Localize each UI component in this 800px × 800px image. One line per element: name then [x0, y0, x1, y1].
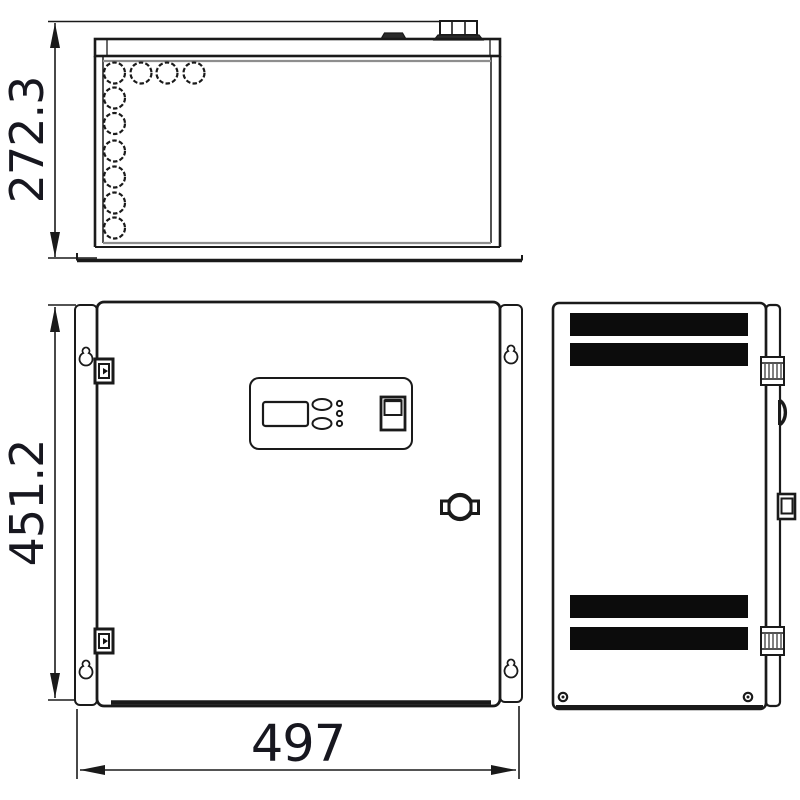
vent-slot-icon	[570, 313, 748, 336]
knockout-hole-icon	[104, 167, 125, 188]
lcd-display	[263, 402, 308, 426]
knockout-hole-icon	[104, 88, 125, 109]
height-dimension-label: 451.2	[0, 440, 54, 567]
control-panel	[250, 378, 412, 449]
keyhole-mount-icon	[505, 659, 518, 677]
button-down-icon	[313, 418, 332, 429]
knockout-hole-icon	[104, 193, 125, 214]
enclosure-top-view: 272.3	[0, 21, 522, 261]
dim-arrow-icon	[50, 673, 60, 698]
depth-dimension-label: 272.3	[0, 77, 54, 204]
dim-arrow-icon	[80, 765, 105, 775]
dim-arrow-icon	[50, 307, 60, 332]
front-door-hinge-bottom	[95, 629, 113, 653]
vent-slots	[570, 313, 748, 650]
cable-gland-icon	[434, 21, 483, 40]
keyhole-mount-slots	[80, 345, 518, 678]
knockout-hole-icon	[184, 63, 205, 84]
dim-arrow-icon	[491, 765, 516, 775]
keyhole-mount-icon	[80, 660, 93, 678]
knockout-hole-icon	[157, 63, 178, 84]
keyhole-mount-icon	[80, 347, 93, 365]
knockout-hole-icon	[104, 63, 125, 84]
right-mounting-flange	[500, 305, 522, 702]
enclosure-side-view	[553, 303, 795, 709]
top-view-lid	[95, 39, 500, 56]
side-hinge-bottom	[761, 627, 784, 655]
front-door	[97, 302, 500, 706]
vent-slot-icon	[570, 343, 748, 366]
width-dimension-label: 497	[251, 715, 345, 774]
power-switch	[381, 397, 405, 430]
knockout-hole-icon	[104, 113, 125, 134]
dimension-height: 451.2	[0, 305, 76, 700]
led-indicator-icon	[337, 401, 342, 406]
bottom-screws	[559, 693, 752, 701]
knockout-hole-icon	[104, 218, 125, 239]
vent-slot-icon	[570, 627, 748, 650]
led-indicators	[337, 401, 342, 426]
knockout-hole-icon	[131, 63, 152, 84]
keyhole-mount-icon	[505, 345, 518, 363]
knockout-holes	[104, 63, 205, 239]
knockout-hole-icon	[104, 141, 125, 162]
front-door-hinge-top	[95, 359, 113, 383]
enclosure-front-view: 451.2	[0, 302, 522, 779]
cam-lock-side	[778, 494, 795, 519]
drawing-page: 272.3	[0, 0, 800, 800]
screw-center-dot	[747, 696, 750, 699]
dim-arrow-icon	[50, 232, 60, 257]
vent-slot-icon	[570, 595, 748, 618]
cam-lock	[442, 495, 479, 519]
dimension-width: 497	[77, 706, 519, 779]
led-indicator-icon	[337, 411, 342, 416]
technical-drawing-canvas: 272.3	[0, 0, 800, 800]
screw-center-dot	[562, 696, 565, 699]
cam-lock-icon	[448, 495, 472, 519]
side-hinge-top	[761, 357, 784, 385]
button-up-icon	[313, 399, 332, 410]
dim-arrow-icon	[50, 23, 60, 48]
top-view-body	[77, 56, 522, 261]
led-indicator-icon	[337, 421, 342, 426]
